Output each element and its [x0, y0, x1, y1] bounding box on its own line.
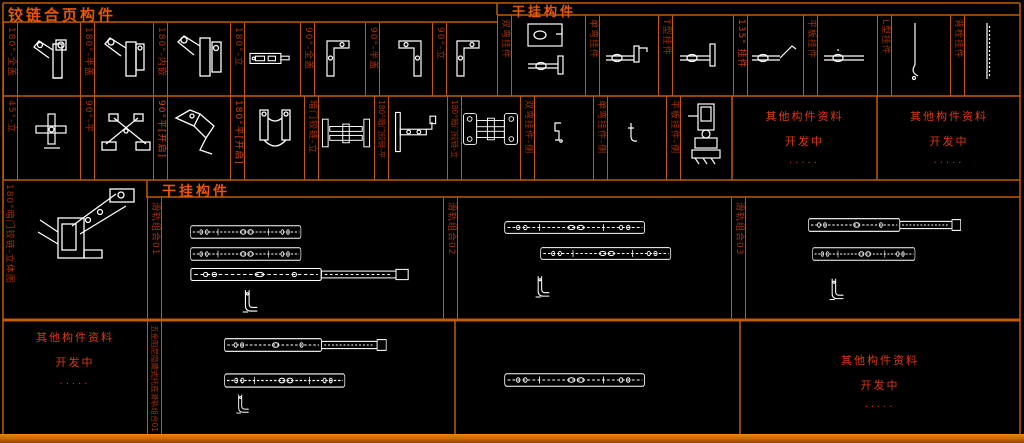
column-label: 滑轨组合02 [443, 198, 458, 320]
rail-section-title: 干挂构件 [162, 181, 230, 201]
mount-bracket-drawing [533, 274, 552, 301]
hanger-side-drawing [550, 120, 566, 146]
column-label: 90°-半盖 [365, 23, 380, 96]
mount-bracket-drawing [826, 277, 847, 303]
notice-cell: 其他构件资料 开发中 ····· [740, 352, 1020, 412]
column-label: 双弯挂件 [497, 15, 512, 96]
drawer-slide-drawing [540, 246, 672, 261]
column-label: 90°-全盖 [300, 23, 315, 96]
column-label: 五金阻尼隐藏式托底滑轨组合01 [147, 321, 162, 434]
drawer-slide-drawing [504, 372, 646, 388]
mount-bracket-drawing [240, 288, 260, 316]
corner-bracket-drawing [320, 36, 360, 78]
column-label: 180°暗门铰链-平 [374, 96, 389, 180]
column-label: 暗门铰链-立 [304, 96, 319, 180]
column-label: L型挂件 [877, 15, 892, 96]
column-label: 180°-半盖 [80, 23, 95, 96]
drawer-slide-drawing [808, 216, 966, 234]
drawer-slide-drawing [504, 220, 646, 235]
corner-bracket-drawing [388, 36, 428, 78]
column-label: 平板挂件 [803, 15, 818, 96]
hinge-drawing [100, 32, 148, 84]
notice-dots: ····· [865, 402, 896, 413]
column-label: 单弯挂件 [585, 15, 600, 96]
notice-line: 开发中 [56, 354, 95, 370]
column-label: 180°-全盖 [3, 23, 18, 96]
hinge-drawing [390, 108, 444, 156]
hinge-drawing [170, 104, 226, 156]
hanger-strip-drawing [980, 20, 994, 82]
hinge-drawing [250, 104, 300, 154]
column-label: 180°-立 [230, 23, 245, 96]
notice-line: 开发中 [785, 133, 824, 149]
hinge-detail-drawing [28, 184, 140, 266]
notice-dots: ····· [789, 158, 820, 169]
drawer-slide-drawing [224, 372, 346, 389]
column-label: 90°-平 [80, 96, 95, 180]
notice-line: 开发中 [861, 377, 900, 393]
detail-label: 180°暗门铰链-立体图 [3, 184, 14, 284]
hinge-drawing [320, 112, 372, 154]
notice-dots: ····· [60, 379, 91, 390]
hanger-rod-drawing [906, 20, 924, 82]
notice-cell: 其他构件资料 开发中 ····· [3, 328, 147, 390]
column-label: 180°平[开启] [230, 96, 245, 180]
column-label: T型挂件 [658, 15, 673, 96]
hanger-section-title: 干挂构件 [512, 1, 576, 20]
hanger-drawing [750, 38, 798, 68]
mount-bracket-drawing [234, 392, 251, 417]
latch-drawing [248, 48, 292, 68]
column-label: 90°平[开启] [153, 96, 168, 180]
hanger-side-drawing [624, 120, 640, 146]
notice-line: 其他构件资料 [36, 329, 114, 345]
notice-line: 开发中 [930, 133, 969, 149]
column-label: 滑轨组合01 [147, 198, 162, 320]
column-label: 45°-立 [3, 96, 18, 180]
drawer-slide-drawing [224, 336, 392, 354]
drawer-slide-drawing [190, 266, 416, 283]
column-label: 180°暗门铰链-立 [447, 96, 462, 180]
notice-line: 其他构件资料 [766, 108, 844, 124]
hanger-side-drawing [686, 102, 728, 166]
sheet-border-bar [0, 434, 1024, 443]
hanger-drawing [604, 42, 650, 70]
notice-line: 其他构件资料 [841, 352, 919, 368]
hanger-drawing [822, 46, 866, 68]
drawer-slide-drawing [190, 224, 302, 240]
notice-cell: 其他构件资料 开发中 ····· [732, 96, 877, 180]
hanger-drawing [524, 20, 576, 78]
column-label: 平板挂件-侧 [666, 96, 681, 180]
hinge-drawing [172, 30, 224, 84]
column-label: 90°-立 [432, 23, 447, 96]
hanger-drawing [678, 40, 724, 70]
column-label: 单弯挂件-侧 [593, 96, 608, 180]
hinge-drawing [30, 34, 70, 86]
column-label: 180°-内嵌 [153, 23, 168, 96]
corner-bracket-drawing [450, 36, 490, 78]
hinge-section-title: 铰链合页构件 [8, 4, 116, 25]
column-label: 背栓挂件 [950, 15, 965, 96]
cad-viewport[interactable]: 铰链合页构件 干挂构件 干挂构件 180°-全盖 180°-半盖 180°-内嵌… [0, 0, 1024, 443]
notice-cell: 其他构件资料 开发中 ····· [878, 96, 1020, 180]
notice-dots: ····· [934, 158, 965, 169]
drawer-slide-drawing [190, 246, 302, 262]
column-label: 135° 挂件 [733, 15, 748, 96]
hinge-drawing [98, 108, 154, 156]
hinge-drawing [30, 110, 72, 156]
column-label: 滑轨组合03 [731, 198, 746, 320]
column-label: 双弯挂件-侧 [520, 96, 535, 180]
notice-line: 其他构件资料 [910, 108, 988, 124]
drawer-slide-drawing [812, 246, 916, 262]
hinge-drawing [462, 106, 519, 152]
